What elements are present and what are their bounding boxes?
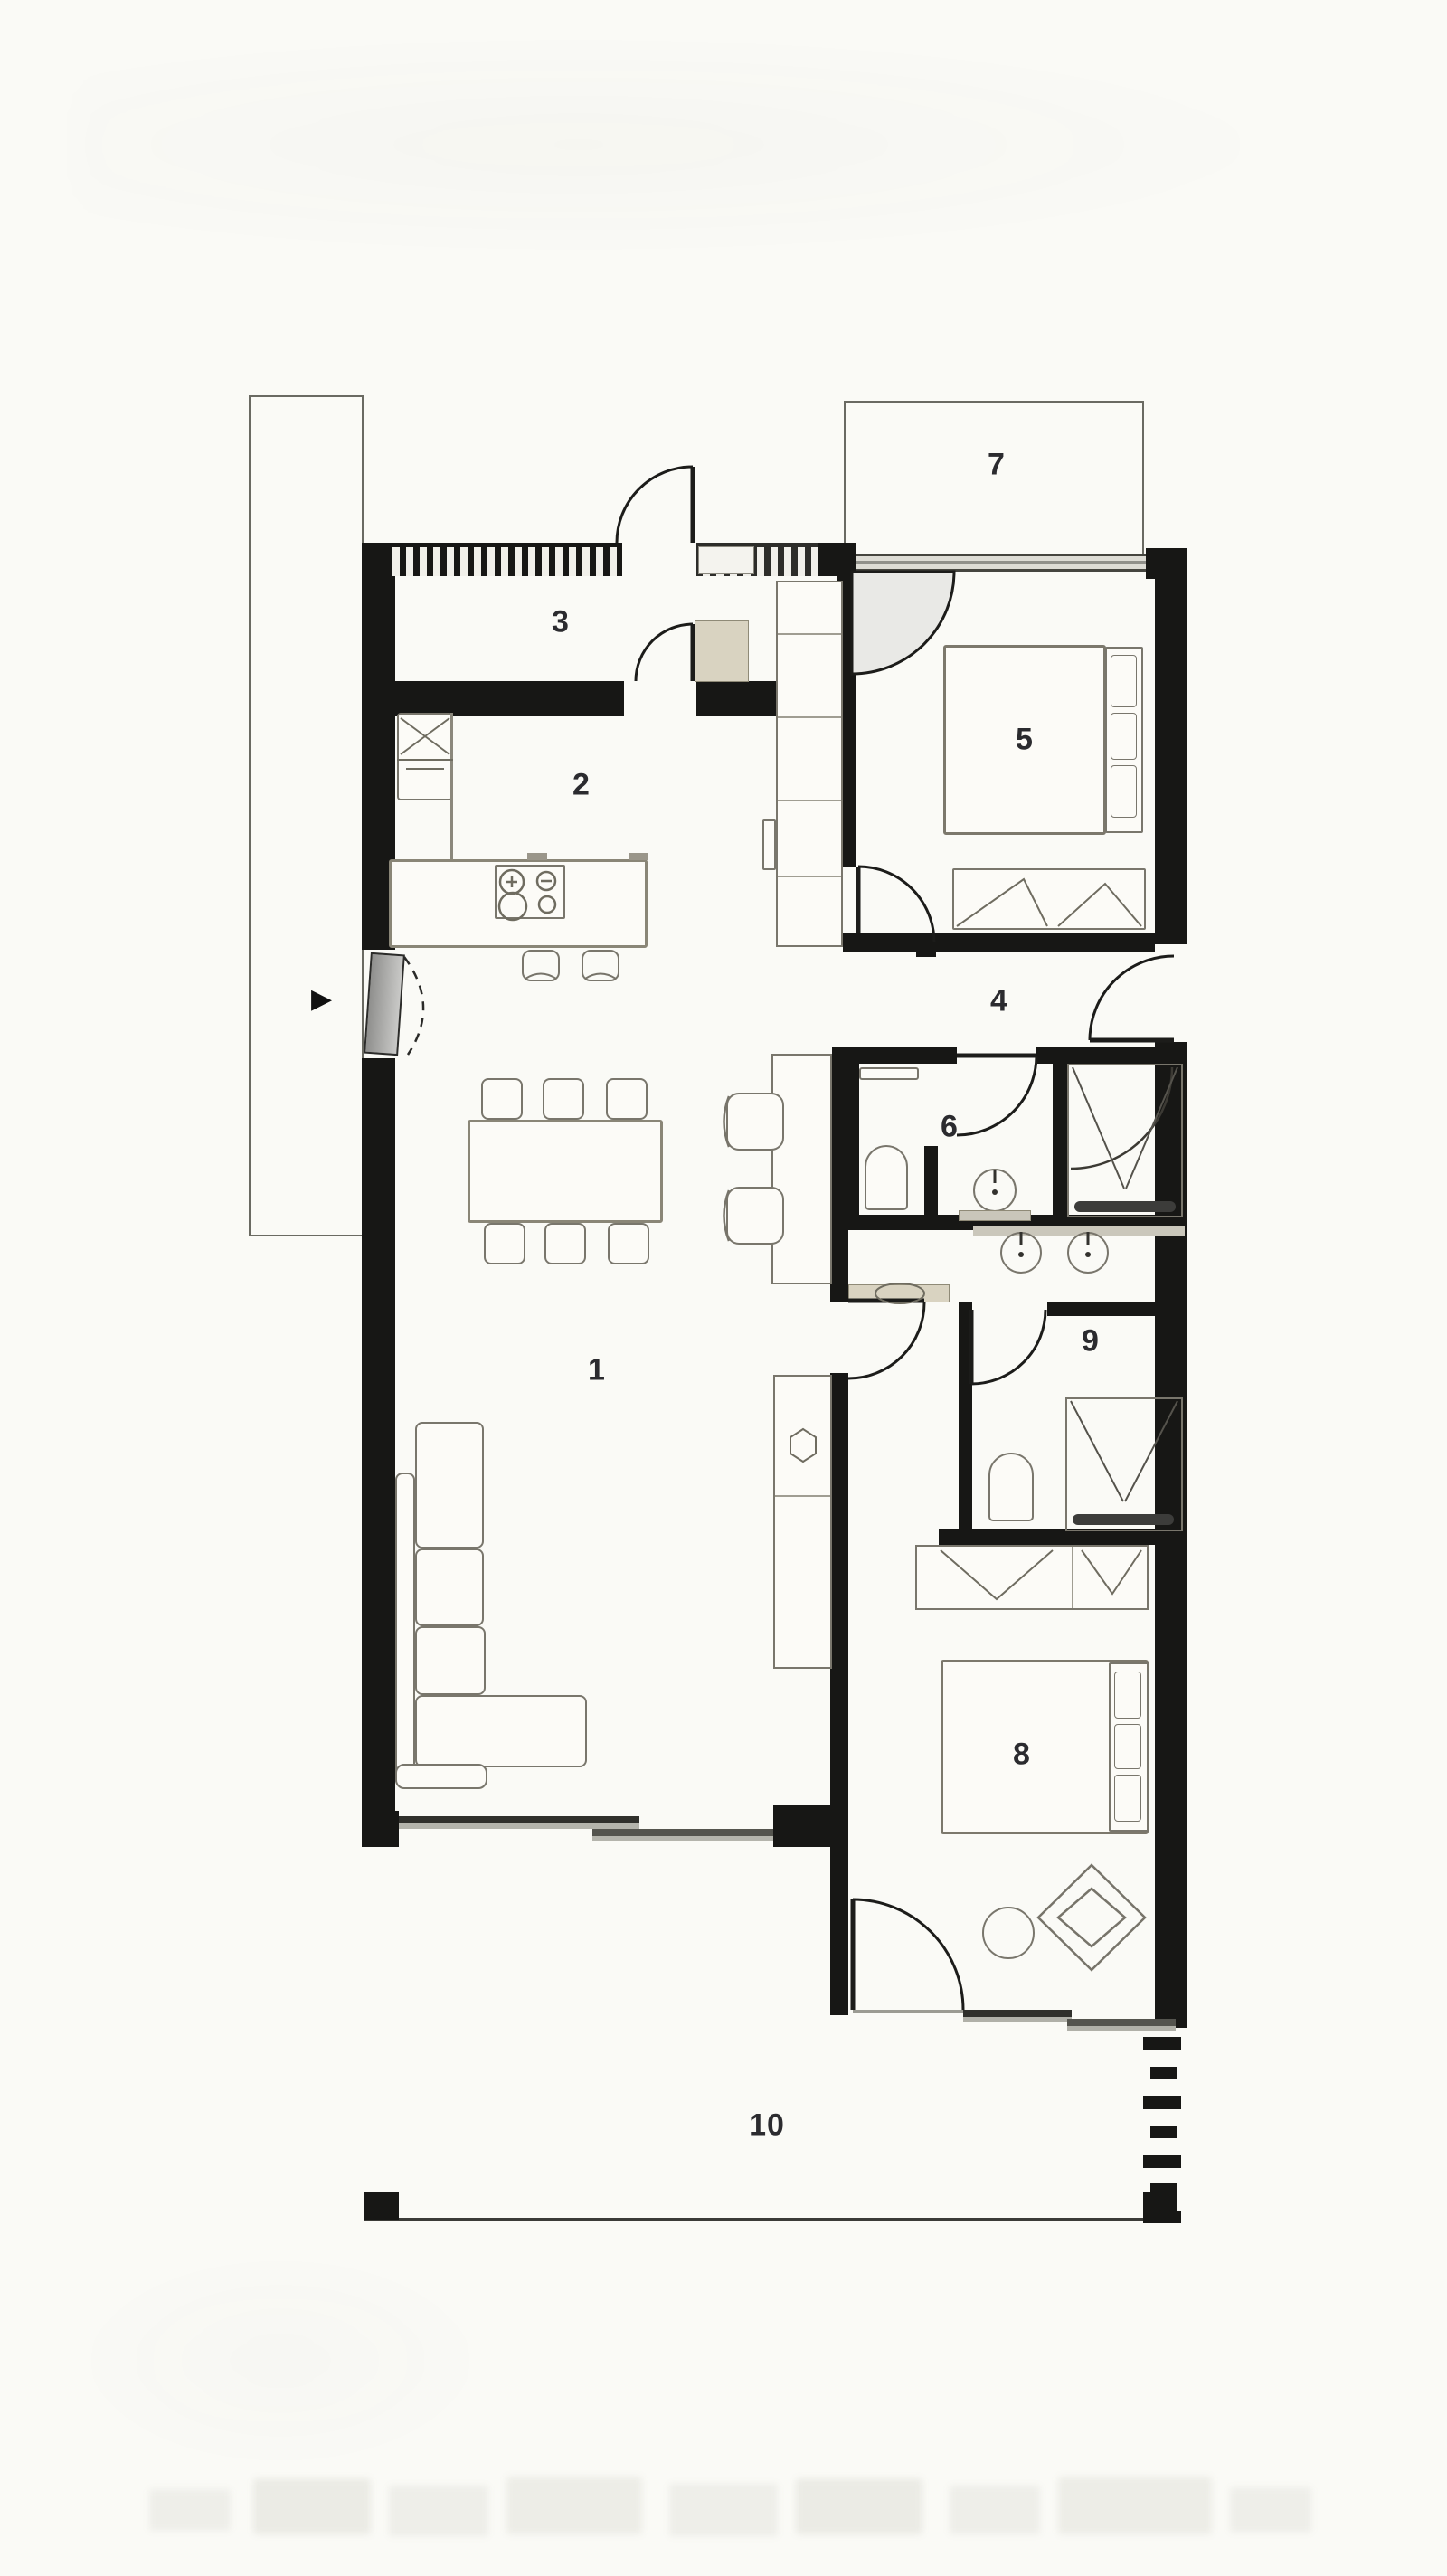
cabinet-division bbox=[778, 876, 841, 877]
fence-tick bbox=[1150, 2067, 1177, 2079]
door-swing bbox=[971, 1310, 1045, 1384]
wall-segment bbox=[959, 1302, 972, 1533]
desk-chair bbox=[726, 1093, 784, 1151]
pillow bbox=[1111, 655, 1137, 707]
wall-inset-panel bbox=[698, 546, 754, 574]
corridor-washstand bbox=[848, 1284, 950, 1302]
pillow bbox=[1114, 1672, 1141, 1719]
paper-texture bbox=[54, 2243, 506, 2478]
room-label-bedroom5: 5 bbox=[1016, 723, 1034, 758]
bar-stool bbox=[582, 950, 619, 981]
dining-chair bbox=[543, 1078, 584, 1120]
sofa-chaise bbox=[415, 1695, 587, 1767]
paper-texture bbox=[72, 27, 1338, 262]
wall-segment bbox=[362, 1058, 395, 1847]
door-swing bbox=[617, 467, 693, 543]
dining-chair bbox=[606, 1078, 648, 1120]
room-label-kitchen: 2 bbox=[572, 768, 591, 803]
shower-towel-bar bbox=[1073, 1514, 1174, 1525]
wall-segment bbox=[830, 1230, 848, 1302]
footer-smudge bbox=[1058, 2477, 1212, 2534]
door-swing bbox=[852, 572, 954, 674]
plan-annotations bbox=[0, 0, 1447, 2576]
dining-table bbox=[468, 1120, 663, 1223]
shower bbox=[1067, 1064, 1183, 1217]
room-label-bedroom8: 8 bbox=[1013, 1738, 1031, 1773]
island-fixture-nub bbox=[527, 853, 547, 860]
wall-segment bbox=[830, 1529, 848, 2015]
wardrobe bbox=[915, 1545, 1149, 1610]
floor-plan-canvas: ▶ bbox=[0, 0, 1447, 2576]
sofa-seat bbox=[415, 1626, 486, 1695]
window-glazing bbox=[1067, 2019, 1176, 2026]
washbasin bbox=[1000, 1232, 1042, 1274]
door-threshold bbox=[853, 2010, 965, 2012]
window-glazing bbox=[399, 1816, 639, 1823]
terrace-corner-post bbox=[364, 2192, 399, 2220]
wall-segment bbox=[773, 1805, 848, 1847]
pouf bbox=[982, 1907, 1035, 1959]
dining-chair bbox=[608, 1223, 649, 1264]
wall-segment bbox=[832, 1047, 859, 1217]
room-label-hallway: 4 bbox=[990, 984, 1008, 1019]
window-glazing bbox=[1067, 2026, 1176, 2031]
door-swing bbox=[957, 1056, 1036, 1135]
sofa-seat bbox=[415, 1548, 484, 1626]
window-glazing bbox=[846, 554, 1146, 572]
room-label-terrace: 10 bbox=[749, 2108, 785, 2144]
room-label-balcony: 7 bbox=[988, 448, 1006, 483]
bar-stool bbox=[522, 950, 560, 981]
wall-segment bbox=[1036, 1047, 1155, 1064]
footer-smudge bbox=[669, 2484, 778, 2536]
entry-door-leaf bbox=[364, 952, 405, 1056]
room-label-living: 1 bbox=[588, 1353, 606, 1388]
shower-towel-bar bbox=[1074, 1201, 1176, 1212]
wall-segment bbox=[1155, 552, 1187, 944]
wall-segment bbox=[1053, 1064, 1067, 1217]
footer-smudge bbox=[253, 2478, 371, 2534]
pillow bbox=[1114, 1724, 1141, 1769]
terrace-edge-line bbox=[364, 2218, 1177, 2221]
sideboard bbox=[773, 1375, 832, 1669]
toilet bbox=[988, 1453, 1034, 1521]
dresser bbox=[952, 868, 1146, 930]
wall-segment bbox=[395, 681, 624, 716]
sofa-back bbox=[395, 1473, 415, 1787]
room-label-hall: 3 bbox=[552, 605, 570, 640]
dining-chair bbox=[544, 1223, 586, 1264]
fence-tick bbox=[1143, 2155, 1181, 2168]
oven-handle bbox=[762, 819, 776, 870]
door-swing bbox=[1090, 956, 1174, 1040]
fence-tick bbox=[1150, 2183, 1177, 2196]
footer-smudge bbox=[389, 2486, 488, 2536]
vanity-counter bbox=[959, 1210, 1031, 1221]
door-jamb bbox=[916, 935, 936, 957]
desk-chair bbox=[726, 1187, 784, 1245]
cabinet-division bbox=[775, 1495, 830, 1497]
door-swing bbox=[848, 1301, 924, 1378]
wall-segment bbox=[830, 1373, 848, 1529]
kitchen-counter-edge bbox=[450, 713, 453, 872]
room-label-ensuite: 9 bbox=[1082, 1324, 1100, 1359]
cooktop bbox=[495, 865, 565, 919]
shoe-cabinet bbox=[695, 620, 749, 682]
dining-chair bbox=[484, 1223, 525, 1264]
pillow bbox=[1111, 713, 1137, 760]
shower bbox=[1065, 1397, 1183, 1531]
room-label-bath6: 6 bbox=[941, 1110, 959, 1145]
footer-smudge bbox=[796, 2478, 922, 2534]
wall-segment bbox=[362, 1811, 399, 1847]
cabinet-division bbox=[778, 800, 841, 801]
sofa-seat bbox=[415, 1422, 484, 1548]
wall-segment bbox=[843, 933, 1155, 952]
wardrobe-division bbox=[1072, 1547, 1073, 1608]
kitchen-sink-unit bbox=[397, 713, 453, 800]
footer-smudge bbox=[149, 2489, 231, 2531]
window-glazing bbox=[963, 2010, 1072, 2017]
door-swing bbox=[858, 867, 934, 942]
side-yard-outline bbox=[249, 395, 364, 1236]
wall-segment bbox=[924, 1146, 938, 1217]
window-glazing bbox=[963, 2017, 1072, 2022]
fence-tick bbox=[1143, 2211, 1181, 2223]
fence-tick bbox=[1143, 2037, 1181, 2050]
footer-smudge bbox=[506, 2477, 642, 2534]
fence-tick bbox=[1150, 2126, 1177, 2138]
washbasin bbox=[973, 1169, 1017, 1212]
island-fixture-nub bbox=[629, 853, 648, 860]
door-swing bbox=[853, 1899, 963, 2010]
entry-door-swing-dashed bbox=[404, 957, 423, 1055]
fence-tick bbox=[1143, 2096, 1181, 2109]
cabinet-division bbox=[778, 716, 841, 718]
footer-smudge bbox=[950, 2486, 1040, 2534]
sofa-armrest bbox=[395, 1764, 487, 1789]
footer-smudge bbox=[1230, 2487, 1311, 2533]
pillow bbox=[1114, 1775, 1141, 1822]
radiator bbox=[859, 1067, 919, 1080]
kitchen-tall-cabinets bbox=[776, 581, 843, 947]
toilet bbox=[865, 1145, 908, 1210]
wall-hatched bbox=[386, 543, 622, 576]
door-swing bbox=[636, 624, 693, 681]
desk-partition bbox=[771, 1054, 832, 1284]
cabinet-division bbox=[778, 633, 841, 635]
pillow bbox=[1111, 765, 1137, 818]
entry-arrow: ▶ bbox=[311, 986, 332, 1013]
wall-segment bbox=[1047, 1302, 1155, 1316]
dining-chair bbox=[481, 1078, 523, 1120]
lounge-chair-diamond bbox=[1038, 1865, 1145, 1970]
washbasin bbox=[1067, 1232, 1109, 1274]
